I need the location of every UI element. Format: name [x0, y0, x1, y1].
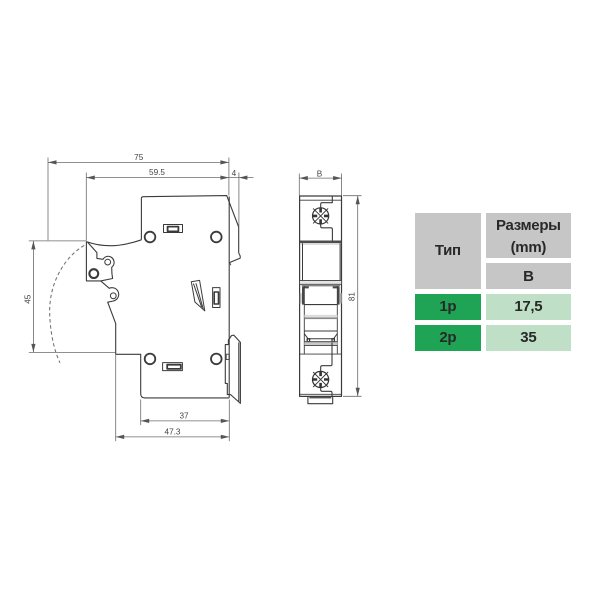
svg-text:37: 37	[179, 412, 189, 421]
svg-text:4: 4	[232, 169, 237, 178]
svg-text:59.5: 59.5	[149, 168, 165, 177]
svg-text:47.3: 47.3	[165, 428, 181, 437]
svg-text:B: B	[317, 169, 323, 178]
svg-text:45: 45	[24, 294, 33, 304]
svg-text:75: 75	[134, 153, 144, 162]
svg-text:81: 81	[347, 292, 356, 302]
